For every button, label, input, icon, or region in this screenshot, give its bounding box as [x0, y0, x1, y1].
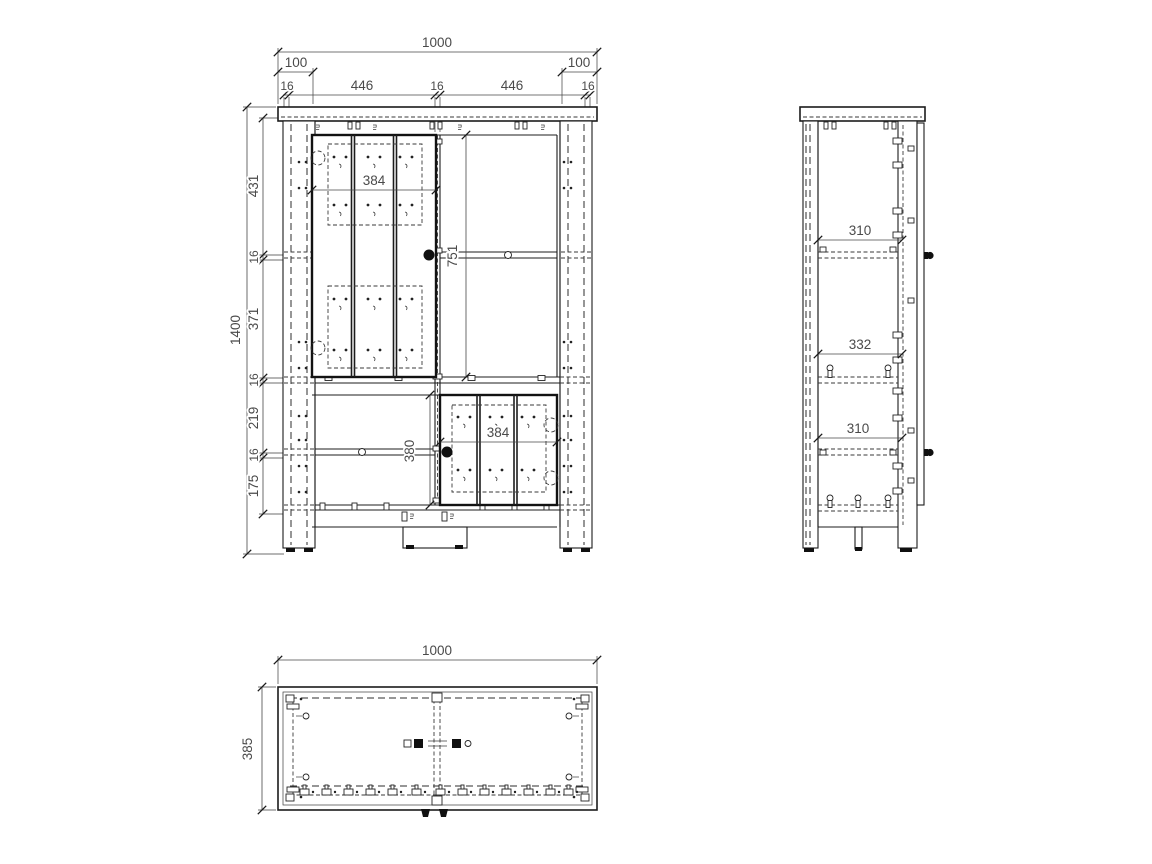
dim-leg-left: 100 [285, 55, 308, 70]
front-left-leg [283, 121, 315, 548]
upper-right-opening: 751 [445, 131, 557, 381]
shelf-pin [566, 713, 572, 719]
dim-chain-16a: 16 [280, 79, 294, 93]
upper-left-door: 384 [308, 135, 440, 377]
furniture-technical-drawing: 1000 100 100 16 446 16 446 16 1400 [0, 0, 1152, 864]
plan-door-knob [439, 809, 448, 817]
lower-right-door: 384 [436, 395, 561, 505]
dim-chain-16c: 16 [581, 79, 595, 93]
side-view: 310 332 310 [800, 107, 934, 552]
plan-door-knob [421, 809, 430, 817]
dim-16-3: 16 [247, 448, 261, 462]
plan-view: 1000 385 [240, 643, 601, 817]
dim-431: 431 [246, 175, 261, 198]
dim-upper-door-width: 384 [363, 173, 386, 188]
side-top-board [800, 107, 925, 121]
dim-overall-height: 1400 [228, 315, 243, 345]
front-right-leg [560, 121, 592, 548]
dim-chain-446a: 446 [351, 78, 374, 93]
dim-plan-width: 1000 [422, 643, 452, 658]
shelf-pin [505, 252, 512, 259]
side-dimensions: 310 332 310 [814, 223, 906, 442]
side-center-foot [855, 527, 862, 549]
center-foot [403, 527, 467, 548]
side-door-knob [924, 449, 934, 456]
dim-shelf-depth-3: 310 [847, 421, 870, 436]
dim-upper-door-height: 751 [445, 245, 460, 268]
side-door-knob [924, 252, 934, 259]
dim-lower-opening-height: 380 [402, 440, 417, 463]
shelf-pin [303, 774, 309, 780]
dim-plan-depth: 385 [240, 738, 255, 761]
shelf-pin [303, 713, 309, 719]
dim-175: 175 [246, 475, 261, 498]
dim-lower-door-width: 384 [487, 425, 510, 440]
dim-16-1: 16 [247, 250, 261, 264]
front-left-dimensions: 1400 431 16 371 16 219 16 175 [228, 103, 284, 558]
dim-219: 219 [246, 407, 261, 430]
dim-shelf-depth-2: 332 [849, 337, 872, 352]
dim-shelf-depth-1: 310 [849, 223, 872, 238]
side-door-panel [917, 123, 924, 505]
door-knob [424, 250, 435, 261]
dim-16-2: 16 [247, 373, 261, 387]
dim-overall-width: 1000 [422, 35, 452, 50]
dim-leg-right: 100 [568, 55, 591, 70]
dim-371: 371 [246, 308, 261, 331]
top-board [278, 107, 597, 121]
front-view: 1000 100 100 16 446 16 446 16 1400 [228, 35, 601, 558]
shelf-pin [359, 449, 366, 456]
door-knob [442, 447, 453, 458]
dim-chain-446b: 446 [501, 78, 524, 93]
shelf-pin [566, 774, 572, 780]
dim-chain-16b: 16 [430, 79, 444, 93]
